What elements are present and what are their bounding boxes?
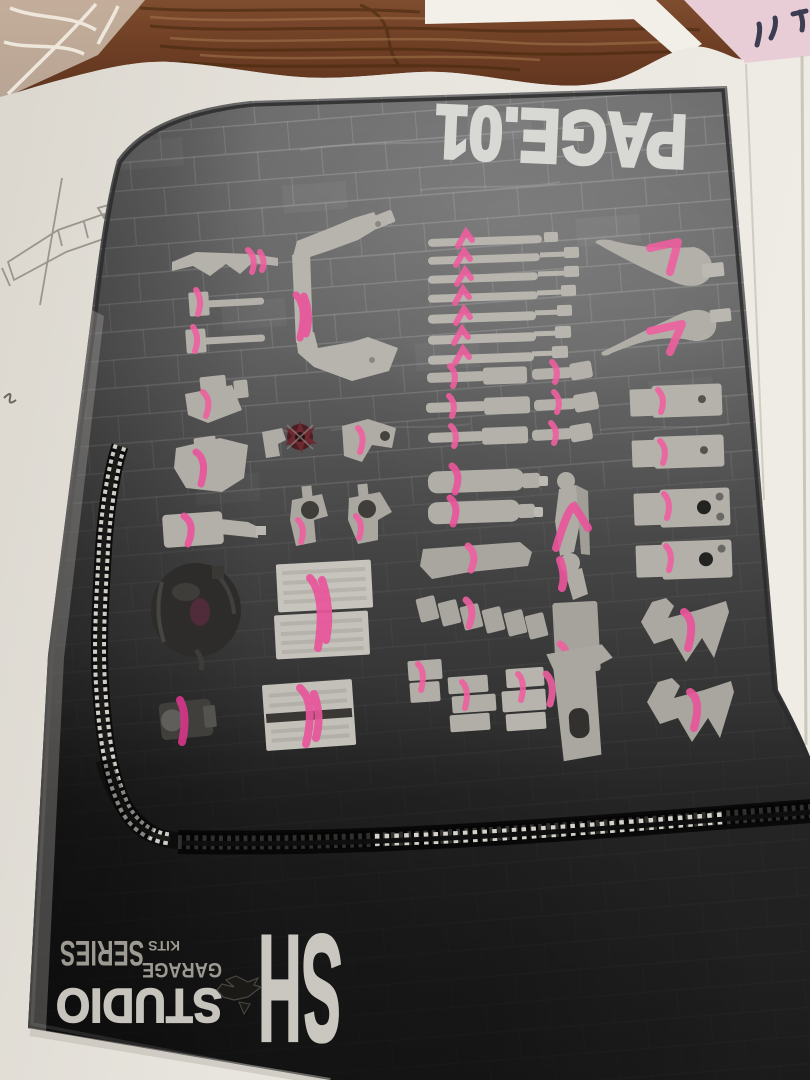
svg-text:STUDIO: STUDIO xyxy=(56,978,222,1031)
svg-text:PAGE.01: PAGE.01 xyxy=(433,90,688,185)
svg-text:SERIES: SERIES xyxy=(60,933,144,972)
svg-text:KITS: KITS xyxy=(148,938,180,954)
svg-text:GARAGE: GARAGE xyxy=(142,958,222,981)
svg-text:SH: SH xyxy=(258,903,342,1073)
